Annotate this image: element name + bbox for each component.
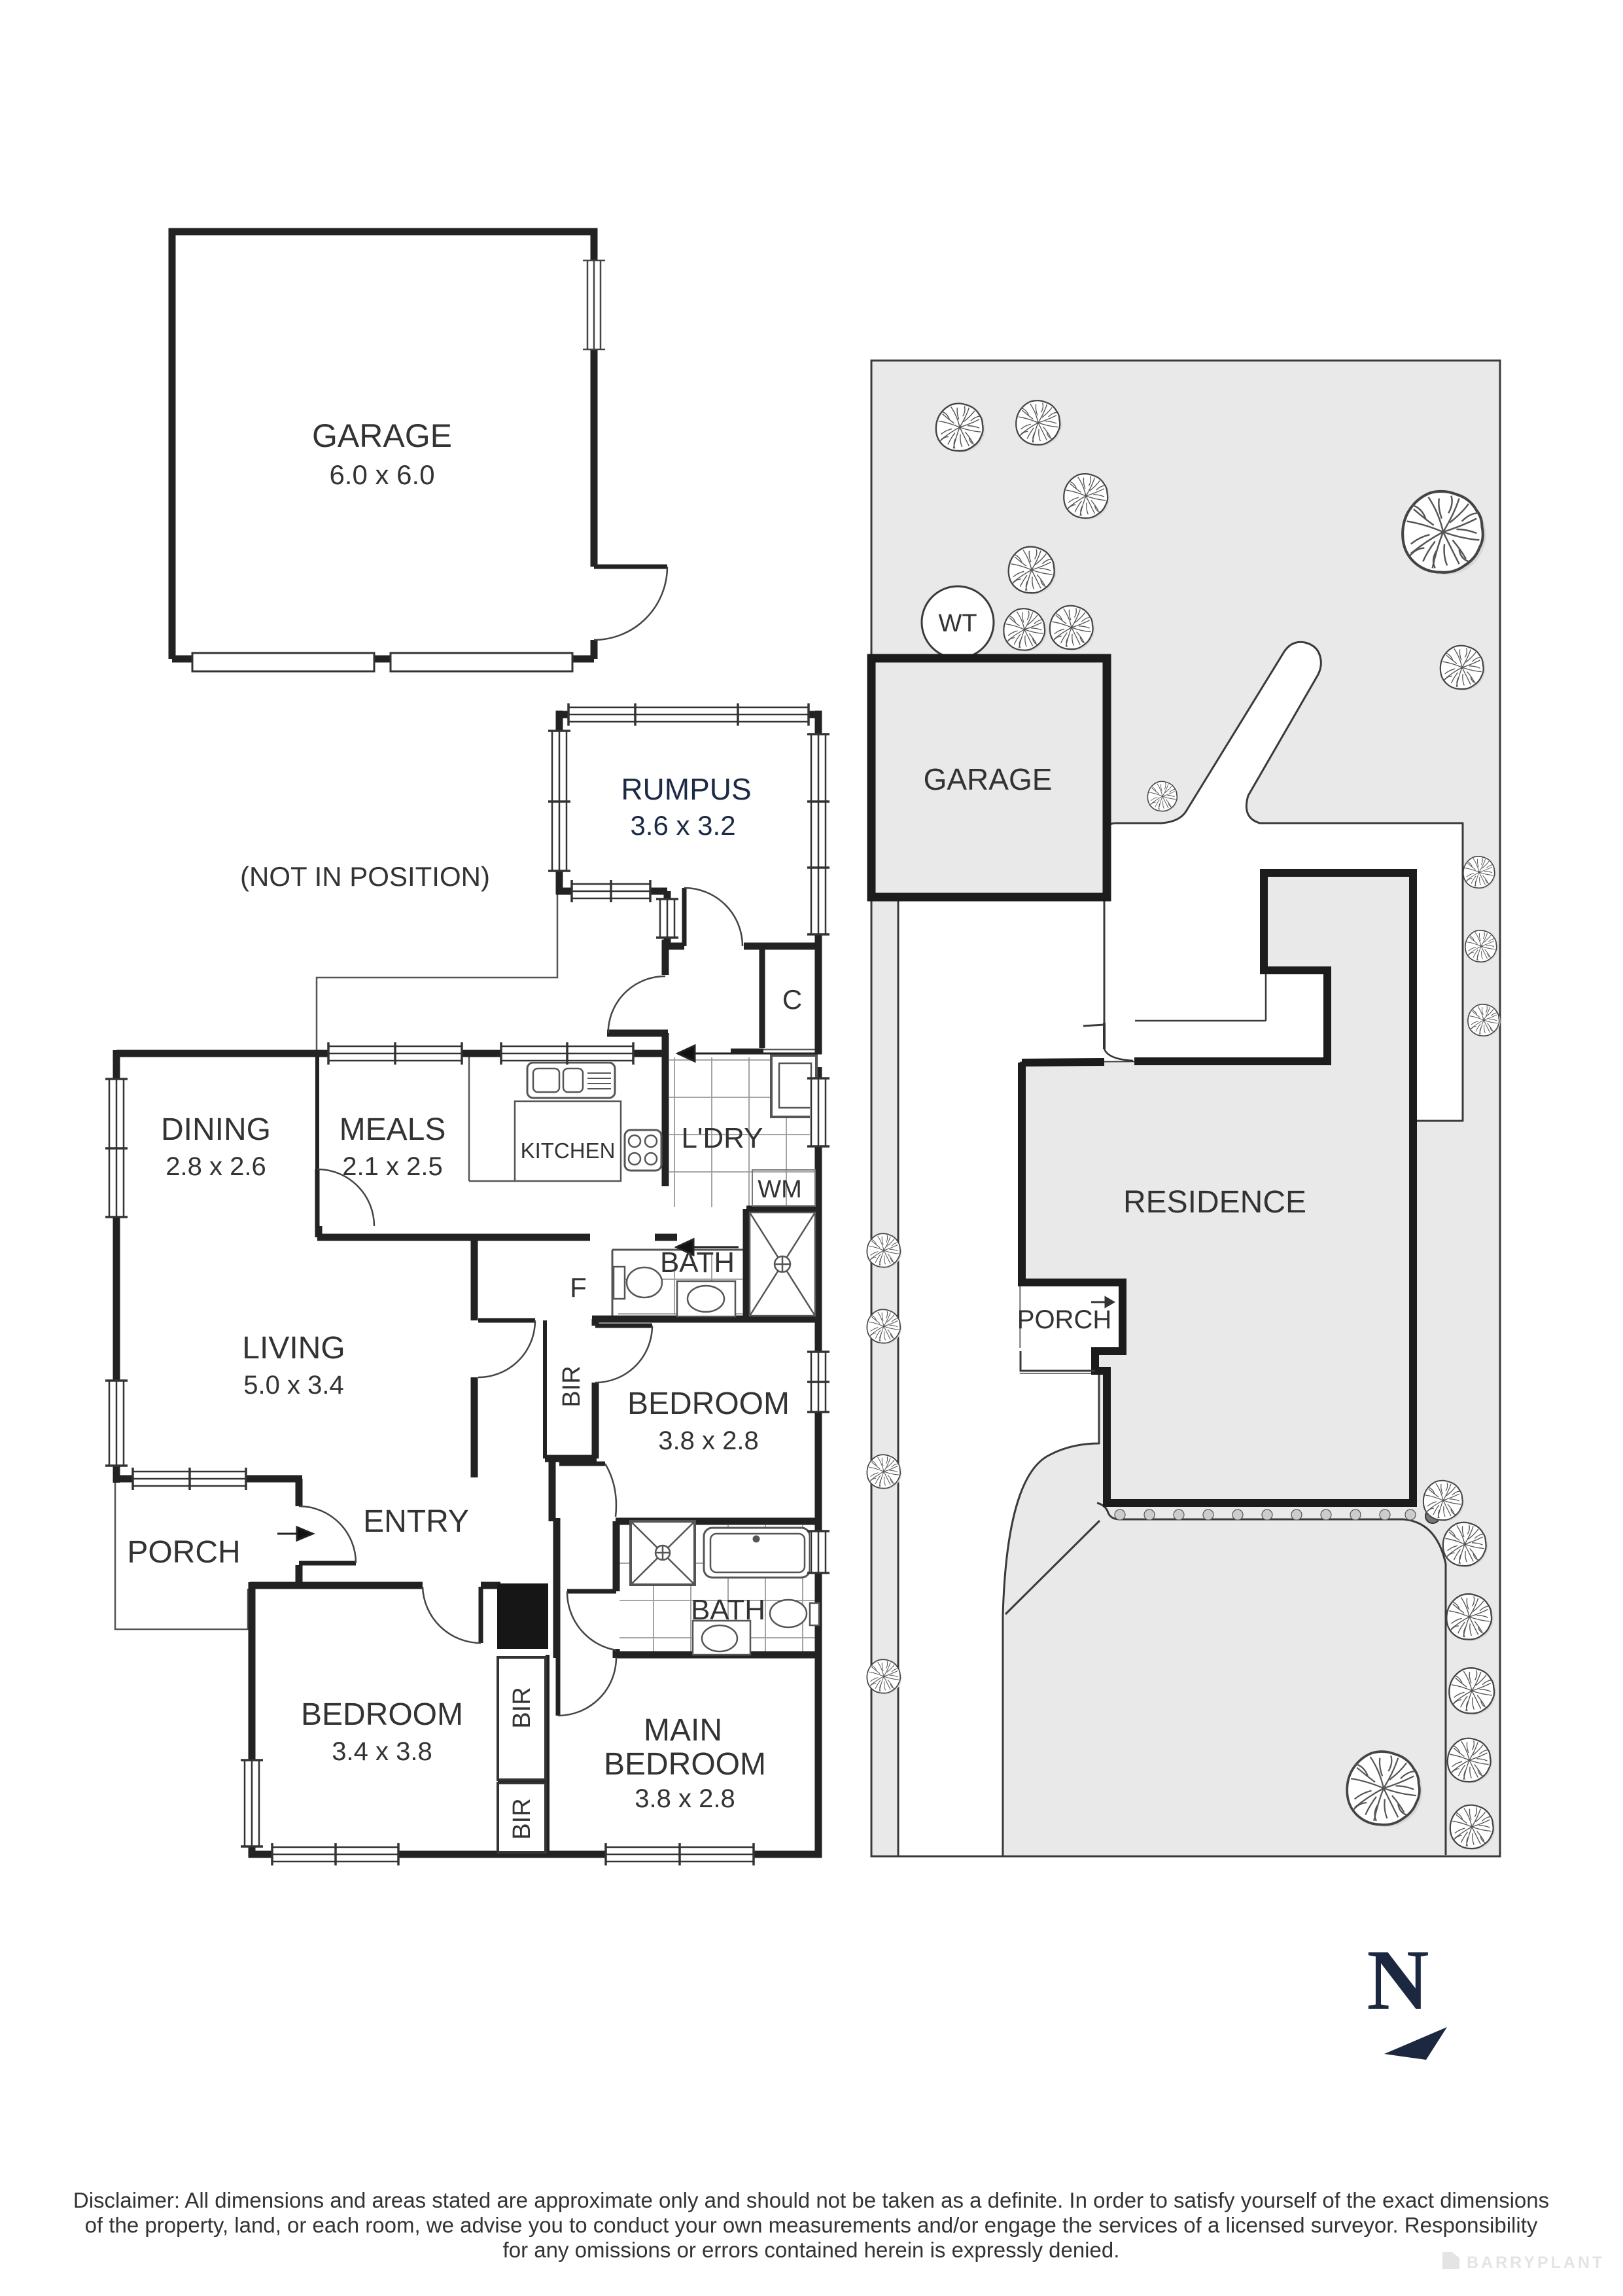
svg-text:F: F <box>570 1272 587 1303</box>
svg-text:3.4 x 3.8: 3.4 x 3.8 <box>332 1737 432 1766</box>
svg-text:3.6 x 3.2: 3.6 x 3.2 <box>630 810 735 841</box>
svg-text:BEDROOM: BEDROOM <box>301 1697 463 1732</box>
svg-text:for any omissions or errors co: for any omissions or errors contained he… <box>503 2238 1120 2262</box>
svg-text:RESIDENCE: RESIDENCE <box>1123 1185 1306 1220</box>
svg-text:BATH: BATH <box>660 1246 735 1279</box>
svg-text:KITCHEN: KITCHEN <box>521 1139 616 1163</box>
svg-text:MEALS: MEALS <box>340 1112 446 1147</box>
svg-text:PORCH: PORCH <box>127 1535 240 1570</box>
svg-text:WT: WT <box>938 610 977 637</box>
svg-text:2.8 x 2.6: 2.8 x 2.6 <box>166 1152 266 1181</box>
svg-text:WM: WM <box>758 1176 802 1203</box>
svg-text:BATH: BATH <box>691 1594 765 1626</box>
svg-text:MAIN: MAIN <box>644 1713 722 1748</box>
svg-text:BIR: BIR <box>508 1798 536 1839</box>
svg-text:Disclaimer: All dimensions and: Disclaimer: All dimensions and areas sta… <box>73 2188 1549 2212</box>
svg-text:PORCH: PORCH <box>1017 1305 1111 1334</box>
svg-text:LIVING: LIVING <box>242 1331 345 1366</box>
svg-text:(NOT IN POSITION): (NOT IN POSITION) <box>240 861 490 892</box>
svg-text:3.8 x 2.8: 3.8 x 2.8 <box>635 1784 735 1813</box>
svg-text:5.0 x 3.4: 5.0 x 3.4 <box>243 1371 343 1400</box>
svg-text:L'DRY: L'DRY <box>682 1122 763 1154</box>
svg-text:DINING: DINING <box>161 1112 271 1147</box>
svg-text:ENTRY: ENTRY <box>363 1504 469 1539</box>
svg-text:BARRYPLANT: BARRYPLANT <box>1467 2253 1605 2272</box>
svg-text:N: N <box>1367 1932 1429 2028</box>
svg-text:6.0 x 6.0: 6.0 x 6.0 <box>329 459 434 490</box>
svg-text:BIR: BIR <box>508 1687 536 1728</box>
svg-text:GARAGE: GARAGE <box>924 762 1053 796</box>
svg-text:BEDROOM: BEDROOM <box>604 1747 766 1782</box>
svg-text:C: C <box>782 984 802 1015</box>
svg-text:2.1 x 2.5: 2.1 x 2.5 <box>342 1152 442 1181</box>
svg-text:of the property, land, or each: of the property, land, or each room, we … <box>85 2213 1538 2237</box>
svg-text:BIR: BIR <box>558 1366 585 1407</box>
svg-text:GARAGE: GARAGE <box>312 417 452 454</box>
svg-text:RUMPUS: RUMPUS <box>621 772 751 806</box>
svg-text:BEDROOM: BEDROOM <box>627 1386 790 1421</box>
svg-text:3.8 x 2.8: 3.8 x 2.8 <box>658 1426 758 1455</box>
